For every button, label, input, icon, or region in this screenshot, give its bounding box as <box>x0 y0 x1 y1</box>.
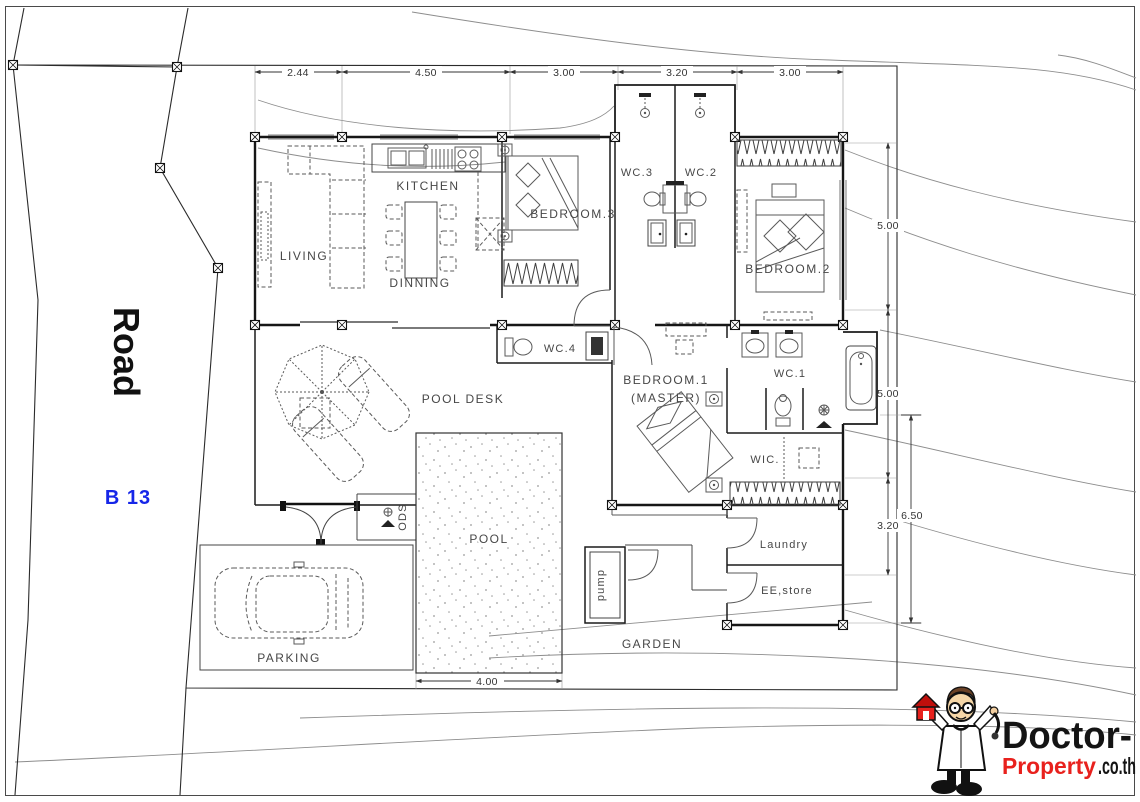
pool: POOL <box>416 433 562 673</box>
bedroom1-label-2: (MASTER) <box>631 391 701 405</box>
dim-right-320: 3.20 <box>877 520 899 532</box>
dinning-label: DINNING <box>389 276 450 290</box>
ods-label: ODS <box>397 503 409 530</box>
pool-label: POOL <box>469 532 508 546</box>
wc1-label: WC.1 <box>774 368 806 380</box>
garden-label: GARDEN <box>622 637 682 651</box>
bedroom1-label-1: BEDROOM.1 <box>623 373 709 387</box>
pool-desk-label: POOL DESK <box>422 392 504 406</box>
dim-right-5a: 5.00 <box>877 220 899 232</box>
wc4-label: WC.4 <box>544 343 576 355</box>
page-border <box>6 7 1135 796</box>
living-label: LIVING <box>280 249 328 263</box>
wardrobe-bedroom2 <box>737 140 841 166</box>
dim-top-3: 3.00 <box>553 67 575 79</box>
road-label: Road <box>106 307 147 397</box>
ee-store-label: EE,store <box>761 585 813 597</box>
plot-number-label: B 13 <box>105 487 151 509</box>
dim-right-650: 6.50 <box>901 510 923 522</box>
wc2-label: WC.2 <box>685 167 717 179</box>
dim-top-2: 4.50 <box>415 67 437 79</box>
wc3-label: WC.3 <box>621 167 653 179</box>
kitchen-label: KITCHEN <box>396 179 459 193</box>
dim-top-4: 3.20 <box>666 67 688 79</box>
pump-label: pump <box>595 569 607 601</box>
wic-label: WIC. <box>750 454 779 466</box>
dim-top-5: 3.00 <box>779 67 801 79</box>
dim-bottom-400: 4.00 <box>476 676 498 688</box>
parking-label: PARKING <box>257 651 321 665</box>
bedroom3-label: BEDROOM.3 <box>530 207 616 221</box>
logo-text-doctor: Doctor- <box>1002 715 1132 757</box>
logo-text-property: Property <box>1002 753 1096 779</box>
laundry-label: Laundry <box>760 539 808 551</box>
floor-plan-canvas: Road B 13 2.44 4.50 3.00 3.20 3.00 5.00 … <box>0 0 1140 802</box>
bedroom2-label: BEDROOM.2 <box>745 262 831 276</box>
wardrobe-wic <box>730 482 840 505</box>
dim-right-5b: 5.00 <box>877 388 899 400</box>
dim-top-1: 2.44 <box>287 67 309 79</box>
wardrobe-bedroom3 <box>504 260 578 286</box>
logo-text-suffix: .co.th <box>1098 753 1136 779</box>
floor-plan-page: Road B 13 2.44 4.50 3.00 3.20 3.00 5.00 … <box>0 0 1140 802</box>
